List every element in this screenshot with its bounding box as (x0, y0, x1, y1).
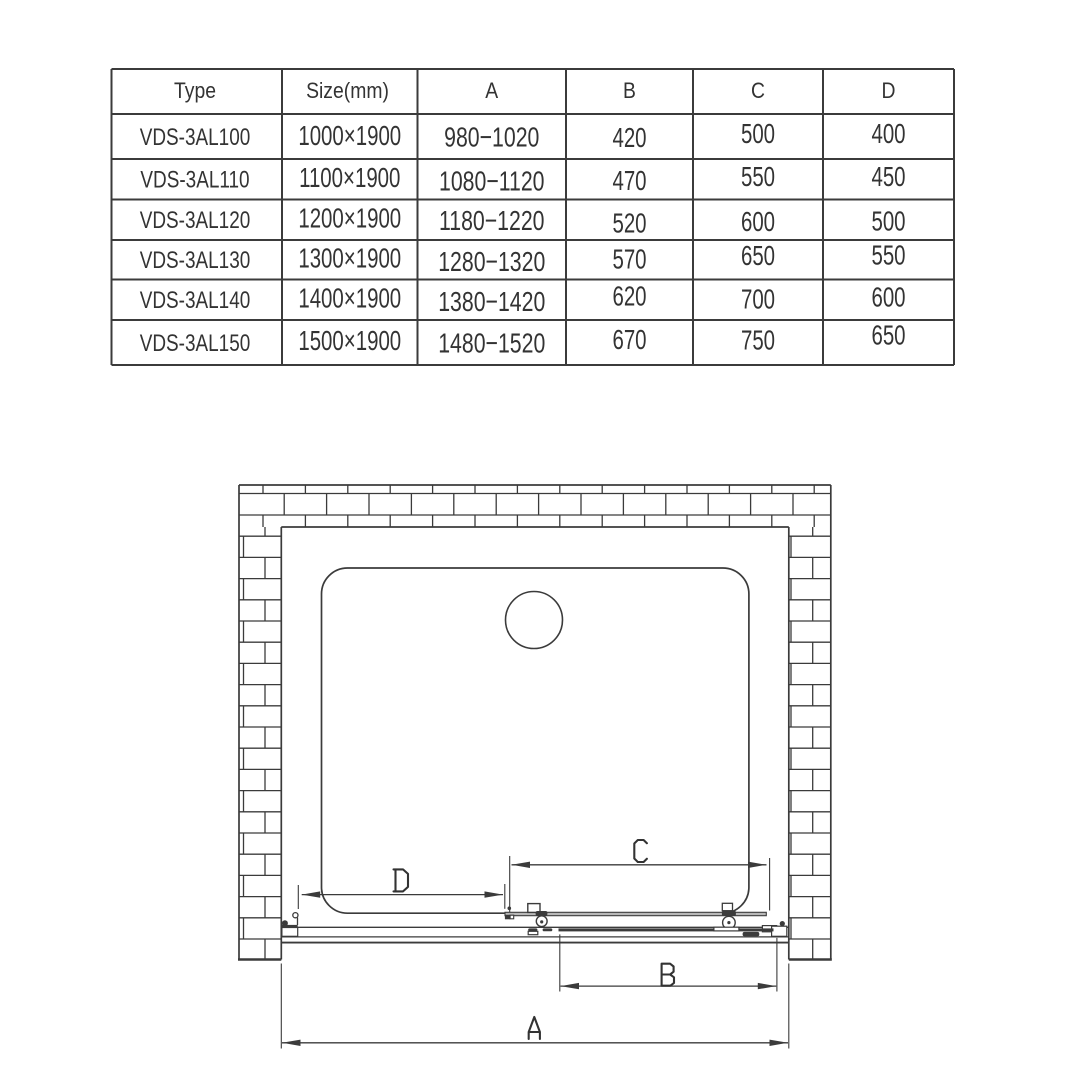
svg-text:450: 450 (871, 162, 905, 193)
svg-text:1400×1900: 1400×1900 (298, 283, 401, 314)
svg-text:500: 500 (741, 119, 775, 150)
svg-text:550: 550 (741, 162, 775, 193)
svg-text:670: 670 (612, 325, 646, 356)
svg-text:1500×1900: 1500×1900 (298, 326, 401, 357)
svg-text:550: 550 (871, 240, 905, 271)
svg-text:650: 650 (741, 241, 775, 272)
svg-text:420: 420 (612, 123, 646, 154)
svg-text:1080−1120: 1080−1120 (439, 165, 544, 197)
svg-text:1380−1420: 1380−1420 (438, 286, 545, 318)
svg-text:1200×1900: 1200×1900 (298, 203, 401, 234)
svg-text:470: 470 (612, 166, 646, 197)
svg-text:VDS-3AL140: VDS-3AL140 (140, 286, 251, 314)
svg-text:A: A (485, 79, 498, 103)
svg-text:570: 570 (612, 244, 646, 275)
svg-text:1000×1900: 1000×1900 (298, 121, 401, 152)
svg-text:Type: Type (174, 79, 216, 103)
svg-text:700: 700 (741, 284, 775, 315)
svg-text:1300×1900: 1300×1900 (298, 243, 401, 274)
svg-text:650: 650 (871, 321, 905, 352)
svg-text:600: 600 (871, 282, 905, 313)
svg-text:1280−1320: 1280−1320 (438, 246, 545, 278)
svg-text:B: B (623, 79, 636, 103)
svg-text:520: 520 (612, 208, 646, 239)
svg-text:Size(mm): Size(mm) (306, 79, 389, 103)
svg-text:980−1020: 980−1020 (444, 122, 539, 154)
svg-text:VDS-3AL150: VDS-3AL150 (140, 329, 251, 357)
svg-text:1100×1900: 1100×1900 (299, 163, 400, 194)
svg-text:400: 400 (871, 119, 905, 150)
svg-text:VDS-3AL110: VDS-3AL110 (140, 165, 249, 193)
svg-text:500: 500 (871, 206, 905, 237)
svg-text:1480−1520: 1480−1520 (438, 328, 545, 360)
svg-text:600: 600 (741, 207, 775, 238)
svg-text:VDS-3AL100: VDS-3AL100 (140, 123, 251, 151)
svg-text:620: 620 (612, 282, 646, 313)
svg-text:750: 750 (741, 325, 775, 356)
svg-text:VDS-3AL120: VDS-3AL120 (140, 206, 251, 234)
svg-text:D: D (882, 79, 896, 103)
svg-text:VDS-3AL130: VDS-3AL130 (140, 246, 251, 274)
svg-text:1180−1220: 1180−1220 (439, 205, 544, 237)
svg-text:C: C (751, 79, 765, 103)
